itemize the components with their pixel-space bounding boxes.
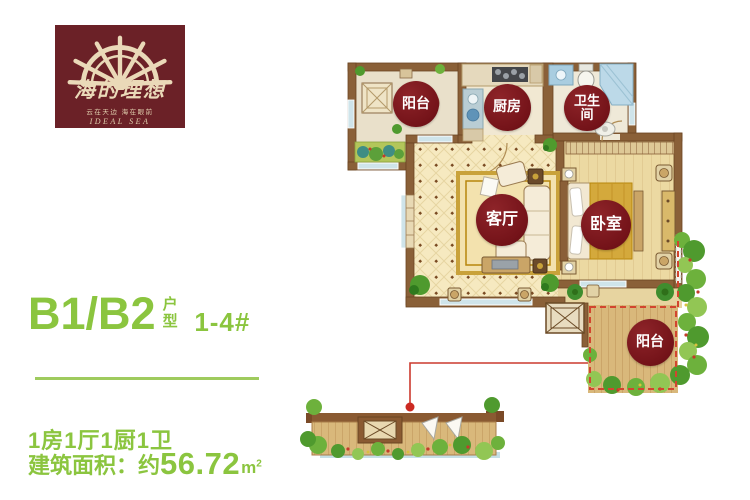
hatch-box: [546, 303, 584, 333]
unit-type-label: 户型: [163, 296, 179, 331]
brand-logo: 海的理想 云在天边 海在眼前 IDEAL SEA: [55, 25, 185, 128]
unit-buildings: 1-4#: [194, 307, 250, 338]
unit-code: B1/B2: [28, 293, 156, 336]
brand-name-en: IDEAL SEA: [90, 117, 151, 126]
area-prefix: 建筑面积：约: [28, 453, 160, 478]
balcony-detail-illustration: [300, 397, 505, 460]
brand-tagline: 云在天边 海在眼前: [86, 106, 153, 116]
page: 海的理想 云在天边 海在眼前 IDEAL SEA B1/B2 户型 1-4# 1…: [0, 0, 750, 500]
green-divider: [35, 377, 259, 380]
brand-name-cn: 海的理想: [74, 74, 166, 104]
area-value: 56.72: [160, 449, 240, 478]
area-unit: m2: [241, 458, 262, 478]
unit-title: B1/B2 户型 1-4#: [28, 293, 250, 338]
floor-plan: [300, 45, 740, 485]
unit-area: 建筑面积：约56.72m2: [28, 449, 262, 478]
